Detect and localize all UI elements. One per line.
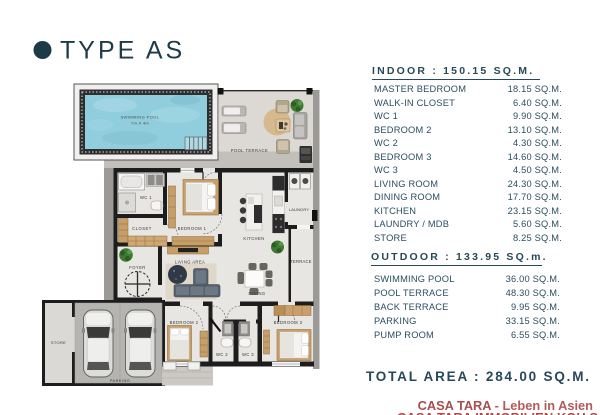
svg-text:STORE: STORE (51, 340, 66, 345)
svg-text:DINING: DINING (248, 291, 265, 296)
svg-text:BEDROOM 2: BEDROOM 2 (170, 320, 199, 325)
svg-text:PARKING: PARKING (110, 378, 131, 383)
svg-text:WC 3: WC 3 (242, 352, 254, 357)
svg-text:LIVING AREA: LIVING AREA (175, 260, 205, 265)
svg-text:WC 2: WC 2 (216, 352, 228, 357)
svg-text:BEDROOM 3: BEDROOM 3 (274, 320, 303, 325)
svg-text:FOYER: FOYER (129, 265, 145, 270)
